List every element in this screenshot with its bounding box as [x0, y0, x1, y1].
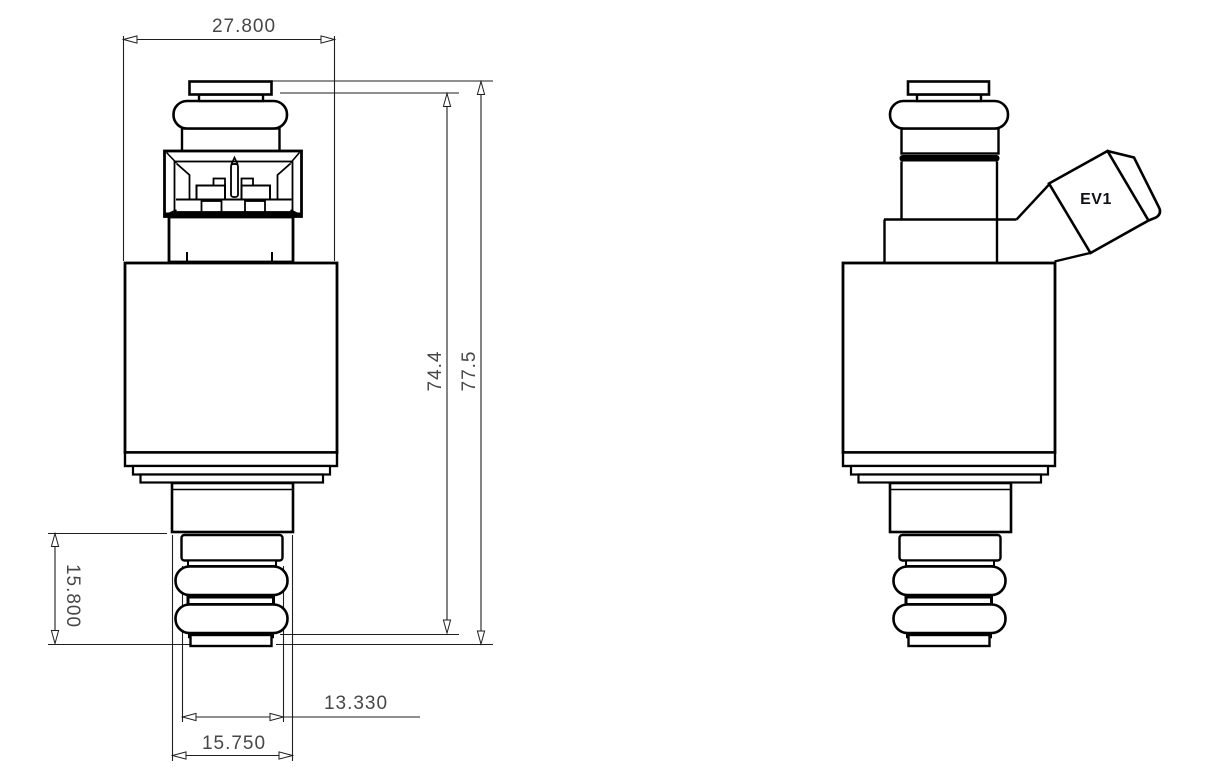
side-body-band [843, 453, 1055, 467]
front-nozzle [182, 535, 283, 561]
side-body [843, 263, 1055, 453]
technical-drawing-canvas: 27.800 74.4 77.5 15.800 13.330 15.750 EV… [0, 0, 1210, 783]
front-upper-oring [174, 101, 288, 129]
side-tip [909, 635, 990, 646]
side-step-1 [851, 466, 1048, 475]
front-body-band [125, 453, 337, 467]
front-view [125, 82, 337, 647]
front-nozzle-step [188, 561, 276, 567]
front-oring-2 [176, 605, 288, 634]
side-nozzle-step [906, 561, 994, 567]
dim-label-seal-diameter: 15.750 [202, 733, 266, 755]
front-step-1 [133, 466, 330, 475]
side-collar [890, 483, 1011, 532]
front-oring-1 [176, 567, 288, 596]
drawing-svg [0, 0, 1210, 783]
side-shoulder [884, 220, 1017, 263]
side-seal-band [900, 155, 1000, 162]
side-inlet-cap [908, 82, 989, 95]
side-nozzle [900, 535, 1001, 561]
side-oring-2 [894, 605, 1006, 634]
dim-label-shoulder-height: 74.4 [425, 351, 447, 392]
dim-label-overall-length: 77.5 [459, 351, 481, 392]
front-neck [182, 129, 280, 152]
side-view [843, 82, 1160, 647]
side-upper-oring [890, 101, 1008, 129]
front-collar [172, 483, 293, 532]
side-step-2 [859, 475, 1042, 483]
front-tip [191, 635, 272, 646]
front-inlet-cap [190, 82, 272, 95]
ev1-connector-label: EV1 [1080, 191, 1112, 209]
dim-label-lower-section-height: 15.800 [61, 564, 83, 628]
dim-label-body-width: 27.800 [212, 16, 276, 38]
front-body [125, 263, 337, 453]
dim-label-tip-diameter: 13.330 [324, 693, 388, 715]
side-oring-1 [894, 567, 1006, 596]
front-step-2 [141, 475, 324, 483]
side-upper-cylinder [902, 129, 999, 154]
